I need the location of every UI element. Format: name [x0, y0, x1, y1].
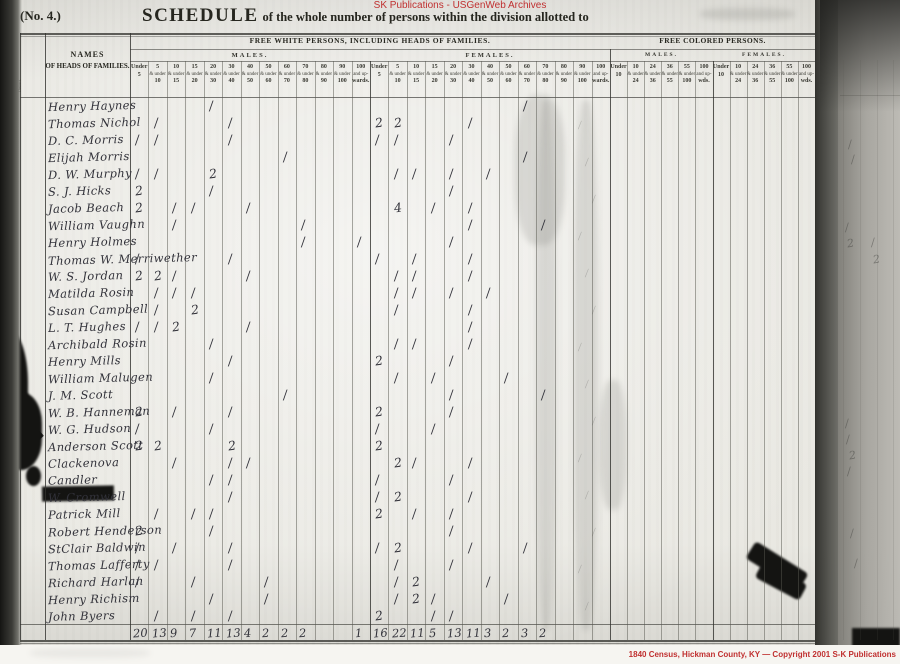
tally-mark: / — [467, 489, 473, 504]
tally-mark: 2 — [134, 200, 144, 216]
age-label-line: & under — [425, 72, 443, 78]
entry-name: Henry Holmes — [48, 234, 137, 250]
entry-name: D. W. Murphy — [48, 166, 132, 182]
tally-mark: / — [503, 591, 509, 606]
tally-mark: / — [208, 591, 214, 606]
column-line — [843, 60, 844, 640]
age-label-line: wards. — [592, 78, 610, 86]
tally-mark: / — [393, 166, 399, 181]
tally-mark: / — [153, 557, 159, 572]
tally-mark: / — [153, 285, 159, 300]
white-f-age-header-0: Under5 — [370, 64, 388, 95]
bleedthrough-hatch: / — [584, 377, 589, 392]
column-line — [241, 61, 242, 640]
neighbor-page-mark: 2 — [872, 252, 881, 266]
entry-name: Susan Campbell — [48, 302, 148, 319]
age-label-line: 90 — [573, 64, 591, 72]
white-f-age-header-10: 80& under90 — [555, 64, 573, 95]
age-label-line: 100 — [592, 64, 610, 72]
entry-name: L. T. Hughes — [48, 319, 126, 335]
age-label-line: & under — [407, 72, 425, 78]
tally-mark: / — [208, 370, 214, 385]
age-label-line: & under — [481, 72, 499, 78]
age-label-line: 5 — [388, 64, 406, 72]
age-label-line: 90 — [315, 78, 333, 86]
tally-mark: / — [393, 268, 399, 283]
colored-f-age-header-2: 24& under36 — [747, 64, 764, 95]
entry-name: D. C. Morris — [48, 132, 124, 148]
column-line — [877, 60, 878, 640]
colored-f-age-header-5: 100and up-wds. — [798, 64, 815, 95]
tally-mark: / — [245, 268, 251, 283]
white-male-total: 9 — [170, 626, 178, 640]
entry-name: William Vaughn — [48, 217, 145, 234]
age-label-line: & under — [462, 72, 480, 78]
age-label-line: & under — [333, 72, 351, 78]
white-female-total: 3 — [484, 626, 492, 640]
entry-name: Anderson Scott — [48, 438, 144, 454]
tally-mark: 2 — [190, 302, 200, 318]
age-label-line: 100 — [798, 64, 815, 72]
tally-mark: / — [245, 319, 251, 334]
column-line — [278, 61, 279, 640]
bleedthrough-hatch: / — [591, 525, 596, 540]
tally-mark: / — [171, 285, 177, 300]
white-male-total: 7 — [188, 626, 196, 640]
column-line — [462, 61, 463, 640]
tally-mark: 2 — [374, 115, 384, 131]
age-label-line: 55 — [781, 64, 798, 72]
tally-mark: / — [411, 455, 417, 470]
tally-mark: / — [134, 319, 140, 334]
census-table: Under55& under1010& under1515& under2020… — [0, 0, 900, 664]
tally-mark: 2 — [208, 166, 218, 182]
tally-mark: / — [485, 574, 491, 589]
white-female-total: 3 — [520, 626, 528, 640]
tally-mark: / — [208, 421, 214, 436]
tally-mark: 2 — [153, 438, 163, 454]
colored-f-age-header-4: 55& under100 — [781, 64, 798, 95]
age-label-line: & under — [573, 72, 591, 78]
tally-mark: / — [448, 387, 454, 402]
age-label-line: 5 — [148, 64, 166, 72]
tally-mark: / — [300, 217, 306, 232]
entry-name: Henry Mills — [48, 353, 121, 369]
tally-mark: / — [467, 217, 473, 232]
entry-name: Richard Harlan — [48, 574, 144, 590]
tally-mark: / — [263, 591, 269, 606]
age-label-line: 15 — [185, 64, 203, 72]
white-m-age-header-12: 100and up-wards. — [352, 64, 370, 95]
column-line — [499, 61, 500, 640]
age-label-line: 80 — [296, 78, 314, 86]
age-label-line: 24 — [730, 78, 747, 86]
column-line — [388, 61, 389, 640]
tally-mark: / — [393, 336, 399, 351]
age-label-line: Under — [370, 64, 388, 72]
tally-mark: / — [411, 268, 417, 283]
age-label-line: 10 — [407, 64, 425, 72]
age-label-line: & under — [167, 72, 185, 78]
white-m-age-header-4: 20& under30 — [204, 64, 222, 95]
age-label-line: 90 — [555, 78, 573, 86]
column-line — [678, 61, 679, 640]
colored-f-age-header-3: 36& under55 — [764, 64, 781, 95]
age-label-line: wards. — [352, 78, 370, 86]
age-label-line: 30 — [462, 64, 480, 72]
tally-mark: / — [153, 319, 159, 334]
tally-mark: / — [190, 608, 196, 623]
tally-mark: / — [393, 557, 399, 572]
age-label-line: 60 — [499, 78, 517, 86]
entry-name: Patrick Mill — [48, 506, 121, 522]
white-f-age-header-7: 50& under60 — [499, 64, 517, 95]
entry-name: Henry Haynes — [48, 98, 137, 114]
tally-mark: / — [448, 557, 454, 572]
bleedthrough-hatch: / — [577, 340, 582, 355]
tally-mark: / — [411, 285, 417, 300]
age-label-line: 40 — [481, 64, 499, 72]
age-label-line: 20 — [444, 64, 462, 72]
white-m-age-header-6: 40& under50 — [241, 64, 259, 95]
white-f-age-header-12: 100and up-wards. — [592, 64, 610, 95]
tally-mark: / — [171, 540, 177, 555]
tally-mark: / — [467, 200, 473, 215]
rule-line — [840, 95, 900, 96]
age-label-line: and up- — [798, 72, 815, 78]
tally-mark: / — [153, 115, 159, 130]
tally-mark: / — [393, 370, 399, 385]
tally-mark: / — [374, 472, 380, 487]
column-line — [407, 61, 408, 640]
column-line — [695, 61, 696, 640]
bleedthrough-hatch: / — [584, 155, 589, 170]
tally-mark: 2 — [153, 268, 163, 284]
white-f-age-header-1: 5& under10 — [388, 64, 406, 95]
age-label-line: 60 — [518, 64, 536, 72]
entry-name: Candler — [48, 472, 98, 487]
entry-name: S. J. Hicks — [48, 183, 112, 199]
entry-name: John Byers — [48, 608, 115, 624]
column-line — [481, 61, 482, 640]
tally-mark: 2 — [374, 404, 384, 420]
white-male-total: 4 — [244, 626, 252, 640]
age-label-line: 100 — [333, 78, 351, 86]
neighbor-page-mark: / — [846, 465, 852, 478]
white-male-total: 11 — [207, 626, 223, 641]
age-label-line: & under — [296, 72, 314, 78]
age-label-line: 80 — [555, 64, 573, 72]
age-label-line: 15 — [167, 78, 185, 86]
colored-f-age-header-0: Under10 — [713, 64, 730, 95]
tally-mark: / — [430, 200, 436, 215]
neighbor-page-mark: / — [870, 236, 876, 249]
tally-mark: / — [171, 404, 177, 419]
age-label-line: 60 — [259, 78, 277, 86]
age-label-line: 100 — [678, 78, 695, 86]
tally-mark: / — [153, 506, 159, 521]
age-label-line: & under — [678, 72, 695, 78]
age-label-line: 50 — [259, 64, 277, 72]
tally-mark: / — [227, 455, 233, 470]
tally-mark: / — [393, 285, 399, 300]
entry-name: Robert Henderson — [48, 523, 162, 540]
entry-name: Thomas Nichol — [48, 115, 141, 131]
tally-mark: / — [448, 132, 454, 147]
rule-line — [20, 33, 815, 35]
bleedthrough-hatch: / — [584, 599, 589, 614]
tally-mark: / — [467, 268, 473, 283]
neighbor-page-mark: 2 — [848, 448, 857, 462]
tally-mark: / — [430, 608, 436, 623]
colored-m-age-header-0: Under10 — [610, 64, 627, 95]
tally-mark: / — [411, 251, 417, 266]
age-label-line: & under — [148, 72, 166, 78]
tally-mark: / — [208, 506, 214, 521]
white-male-total: 2 — [280, 626, 288, 640]
column-line — [167, 61, 168, 640]
tally-mark: 2 — [393, 115, 403, 131]
column-line — [815, 33, 816, 640]
white-female-total: 13 — [447, 626, 463, 641]
colored-f-age-header-1: 10& under24 — [730, 64, 747, 95]
column-line — [798, 61, 799, 640]
white-m-age-header-10: 80& under90 — [315, 64, 333, 95]
tally-mark: / — [208, 183, 214, 198]
tally-mark: / — [430, 421, 436, 436]
tally-mark: / — [227, 251, 233, 266]
tally-mark: 2 — [227, 438, 237, 454]
tally-mark: 4 — [393, 200, 403, 216]
column-line — [860, 60, 861, 640]
white-m-age-header-5: 30& under40 — [222, 64, 240, 95]
age-label-line: 10 — [148, 78, 166, 86]
entry-name: W. G. Hudson — [48, 421, 131, 437]
white-f-age-header-2: 10& under15 — [407, 64, 425, 95]
column-line — [644, 61, 645, 640]
column-line — [222, 61, 223, 640]
age-label-line: wds. — [695, 78, 712, 86]
white-male-total: 20 — [133, 626, 149, 641]
white-female-total: 11 — [410, 626, 426, 641]
column-line — [627, 61, 628, 640]
tally-mark: / — [227, 489, 233, 504]
column-line — [333, 61, 334, 640]
tally-mark: / — [448, 608, 454, 623]
age-label-line: 30 — [444, 78, 462, 86]
age-label-line: 15 — [425, 64, 443, 72]
tally-mark: 2 — [393, 489, 403, 505]
age-label-line: 36 — [747, 78, 764, 86]
rule-line — [20, 640, 815, 642]
column-line — [518, 61, 519, 640]
white-m-age-header-8: 60& under70 — [278, 64, 296, 95]
age-label-line: and up- — [352, 72, 370, 78]
column-line — [610, 49, 611, 640]
white-m-age-header-2: 10& under15 — [167, 64, 185, 95]
age-label-line: 24 — [644, 64, 661, 72]
column-line — [592, 61, 593, 640]
tally-mark: / — [503, 370, 509, 385]
white-f-age-header-6: 40& under50 — [481, 64, 499, 95]
white-f-age-header-8: 60& under70 — [518, 64, 536, 95]
tally-mark: / — [540, 387, 546, 402]
column-line — [148, 61, 149, 640]
tally-mark: / — [393, 591, 399, 606]
age-label-line: 10 — [627, 64, 644, 72]
tally-mark: / — [153, 302, 159, 317]
tally-mark: / — [485, 285, 491, 300]
white-f-age-header-5: 30& under40 — [462, 64, 480, 95]
column-line — [730, 61, 731, 640]
white-f-age-header-3: 15& under20 — [425, 64, 443, 95]
tally-mark: / — [448, 506, 454, 521]
column-line — [315, 61, 316, 640]
entry-name: Archibald Rosin — [48, 336, 147, 353]
tally-mark: / — [393, 302, 399, 317]
column-line — [296, 61, 297, 640]
age-label-line: 100 — [781, 78, 798, 86]
tally-mark: / — [448, 285, 454, 300]
tally-mark: / — [300, 234, 306, 249]
entry-name: Henry Richism — [48, 591, 140, 607]
column-line — [425, 61, 426, 640]
tally-mark: / — [171, 200, 177, 215]
neighbor-page-mark: / — [853, 557, 859, 570]
age-label-line: 50 — [499, 64, 517, 72]
column-line — [444, 61, 445, 640]
age-label-line: 40 — [241, 64, 259, 72]
age-label-line: 24 — [747, 64, 764, 72]
tally-mark: / — [467, 319, 473, 334]
bleedthrough-hatch: / — [591, 414, 596, 429]
entry-name: William Malugen — [48, 370, 153, 387]
tally-mark: / — [467, 251, 473, 266]
age-label-line: 60 — [278, 64, 296, 72]
tally-mark: / — [448, 523, 454, 538]
tally-mark: 2 — [374, 438, 384, 454]
tally-mark: / — [540, 217, 546, 232]
tally-mark: / — [485, 166, 491, 181]
white-female-total: 16 — [373, 626, 389, 641]
white-m-age-header-7: 50& under60 — [259, 64, 277, 95]
entry-name: W. Cromwell — [48, 489, 126, 505]
tally-mark: / — [245, 455, 251, 470]
age-label-line: & under — [627, 72, 644, 78]
entry-name: W. S. Jordan — [48, 268, 124, 284]
column-line — [781, 61, 782, 640]
entry-name: Jacob Beach — [48, 200, 125, 216]
age-label-line: 100 — [352, 64, 370, 72]
tally-mark: / — [190, 200, 196, 215]
age-label-line: & under — [444, 72, 462, 78]
colored-m-age-header-2: 24& under36 — [644, 64, 661, 95]
white-female-total: 5 — [428, 626, 436, 640]
age-label-line: 100 — [573, 78, 591, 86]
age-label-line: & under — [555, 72, 573, 78]
age-label-line: 70 — [536, 64, 554, 72]
entry-name: Clackenova — [48, 455, 120, 471]
tally-mark: / — [448, 166, 454, 181]
age-label-line: 100 — [695, 64, 712, 72]
tally-mark: / — [467, 540, 473, 555]
bleedthrough-hatch: / — [577, 229, 582, 244]
tally-mark: / — [282, 149, 288, 164]
tally-mark: / — [374, 540, 380, 555]
tally-mark: / — [227, 132, 233, 147]
white-male-total: 2 — [262, 626, 270, 640]
white-female-total: 11 — [465, 626, 481, 641]
column-line — [661, 61, 662, 640]
tally-mark: / — [245, 200, 251, 215]
age-label-line: 50 — [481, 78, 499, 86]
white-m-age-header-11: 90& under100 — [333, 64, 351, 95]
tally-mark: / — [374, 421, 380, 436]
entry-name: Elijah Morris — [48, 149, 130, 165]
column-line — [352, 61, 353, 640]
age-label-line: 80 — [315, 64, 333, 72]
column-line — [893, 60, 894, 640]
tally-mark: / — [171, 455, 177, 470]
age-label-line: & under — [278, 72, 296, 78]
age-label-line: wds. — [798, 78, 815, 86]
column-line — [713, 61, 714, 640]
age-label-line: 10 — [730, 64, 747, 72]
white-female-total: 2 — [502, 626, 510, 640]
white-f-age-header-11: 90& under100 — [573, 64, 591, 95]
column-line — [764, 61, 765, 640]
tally-mark: 2 — [411, 591, 421, 607]
tally-mark: / — [448, 404, 454, 419]
tally-mark: / — [448, 183, 454, 198]
tally-mark: / — [393, 574, 399, 589]
age-label-line: 90 — [333, 64, 351, 72]
neighbor-page-mark: / — [844, 417, 850, 430]
entry-name: Matilda Rosin — [48, 285, 135, 301]
tally-mark: 2 — [393, 540, 403, 556]
age-label-line: & under — [661, 72, 678, 78]
tally-mark: / — [356, 234, 362, 249]
tally-mark: / — [153, 132, 159, 147]
column-line — [573, 61, 574, 640]
neighbor-page-mark: / — [850, 153, 856, 166]
tally-mark: / — [190, 574, 196, 589]
column-line — [536, 61, 537, 640]
tally-mark: / — [282, 387, 288, 402]
tally-mark: / — [430, 370, 436, 385]
column-line — [370, 61, 371, 640]
age-label-line: & under — [781, 72, 798, 78]
white-m-age-header-0: Under5 — [130, 64, 148, 95]
entry-name: StClair Baldwin — [48, 540, 146, 557]
tally-mark: / — [190, 285, 196, 300]
tally-mark: 2 — [411, 574, 421, 590]
age-label-line: 30 — [222, 64, 240, 72]
tally-mark: 2 — [374, 506, 384, 522]
tally-mark: 2 — [374, 608, 384, 624]
white-f-age-header-4: 20& under30 — [444, 64, 462, 95]
age-label-line: 10 — [713, 72, 730, 80]
tally-mark: 2 — [134, 183, 144, 199]
neighbor-page-mark: / — [845, 433, 851, 446]
age-label-line: & under — [730, 72, 747, 78]
age-label-line: & under — [747, 72, 764, 78]
tally-mark: / — [153, 608, 159, 623]
tally-mark: / — [208, 523, 214, 538]
neighbor-page-mark: / — [849, 527, 855, 540]
colored-m-age-header-1: 10& under24 — [627, 64, 644, 95]
age-label-line: 70 — [518, 78, 536, 86]
